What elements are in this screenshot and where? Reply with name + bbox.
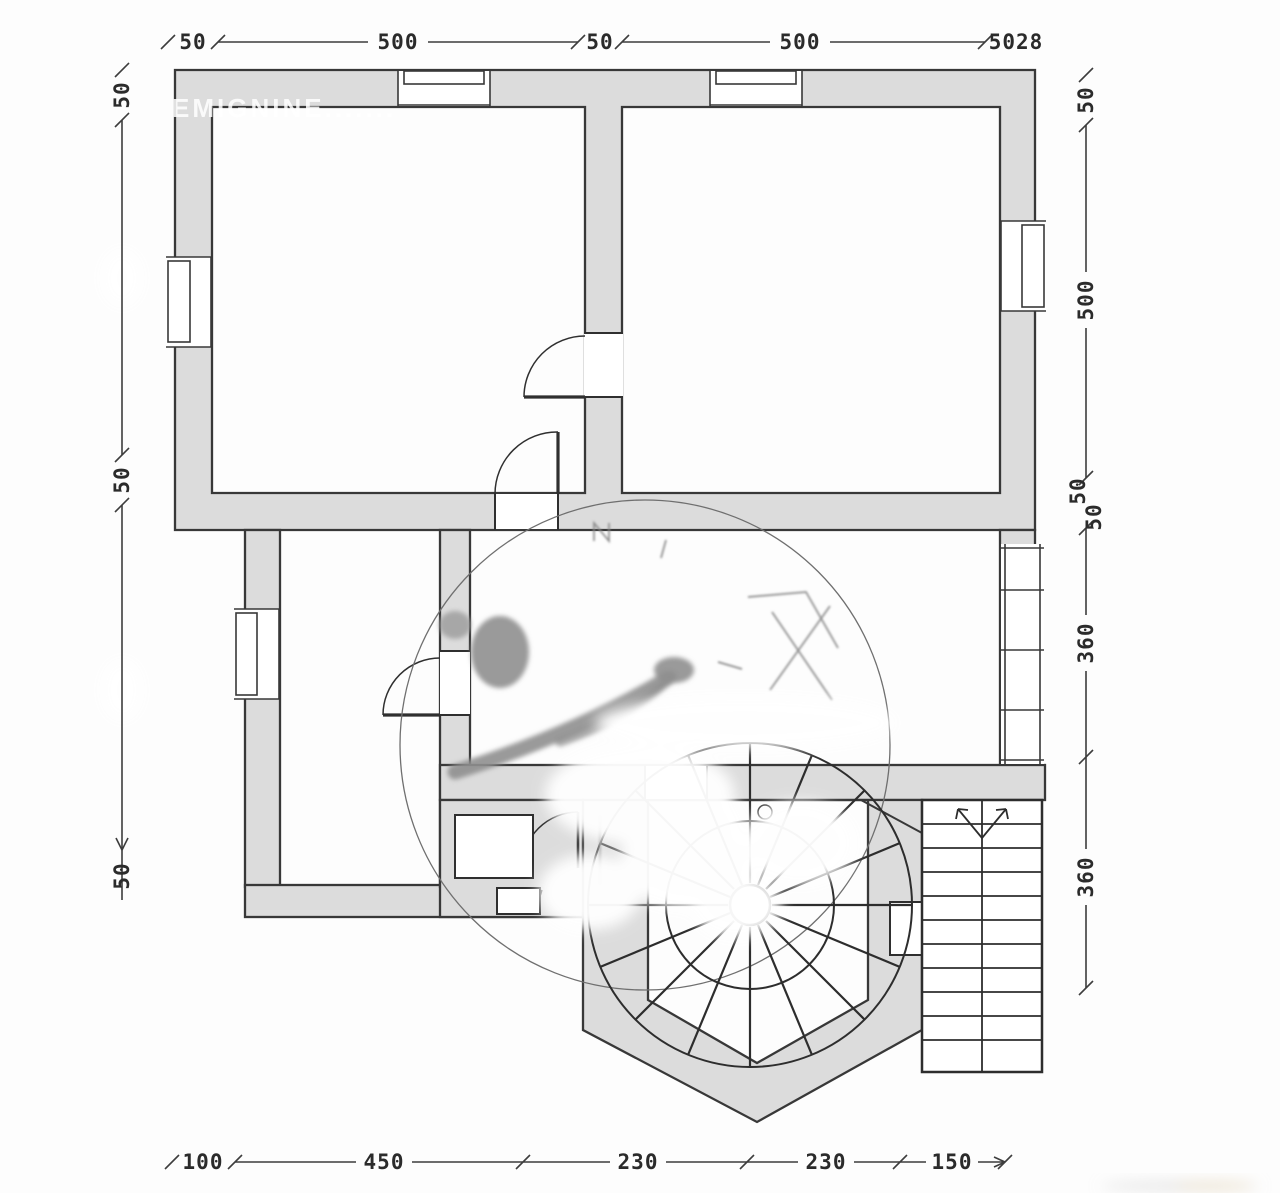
- dimension-label: 50: [1066, 477, 1090, 504]
- dimension-label: 230: [618, 1150, 659, 1174]
- dimension-label: 50: [586, 30, 613, 54]
- floor-plan-svg: 50 500 50 500 5028 50 500 50 50 360 360 …: [0, 0, 1280, 1193]
- dimension-label: 50: [110, 81, 134, 108]
- dimension-label: 50: [179, 30, 206, 54]
- dimension-label: 360: [1074, 623, 1098, 664]
- dimension-label: 500: [780, 30, 821, 54]
- floor-plan-page: 50 500 50 500 5028 50 500 50 50 360 360 …: [0, 0, 1280, 1193]
- dimension-label: 150: [932, 1150, 973, 1174]
- dimension-label: 230: [806, 1150, 847, 1174]
- wc-room: [497, 888, 540, 914]
- dimension-label: 50: [110, 862, 134, 889]
- window-top-right: [710, 71, 802, 106]
- bathroom-room: [455, 815, 533, 878]
- watermark: EMIGNINE.......: [172, 93, 396, 123]
- dimension-label: 500: [378, 30, 419, 54]
- window-hall-right: [1001, 544, 1044, 764]
- straight-staircase: [922, 800, 1042, 1072]
- window-left-closet: [234, 609, 279, 699]
- scan-smears: [1100, 1181, 1260, 1191]
- dimension-label: 50: [110, 466, 134, 493]
- dimension-label: 50: [1074, 86, 1098, 113]
- window-top-left: [398, 71, 490, 106]
- dimension-label: 500: [1074, 280, 1098, 321]
- hall-bottom-wall: [440, 765, 1045, 800]
- dimension-label: 5028: [989, 30, 1044, 54]
- middle-left-outer-wall: [245, 530, 280, 887]
- dimension-label: 360: [1074, 857, 1098, 898]
- window-right-upper: [1001, 221, 1046, 311]
- dimension-label: 450: [364, 1150, 405, 1174]
- window-left-upper: [166, 257, 211, 347]
- dimension-label: 100: [183, 1150, 224, 1174]
- dimension-label: 50: [1082, 503, 1106, 530]
